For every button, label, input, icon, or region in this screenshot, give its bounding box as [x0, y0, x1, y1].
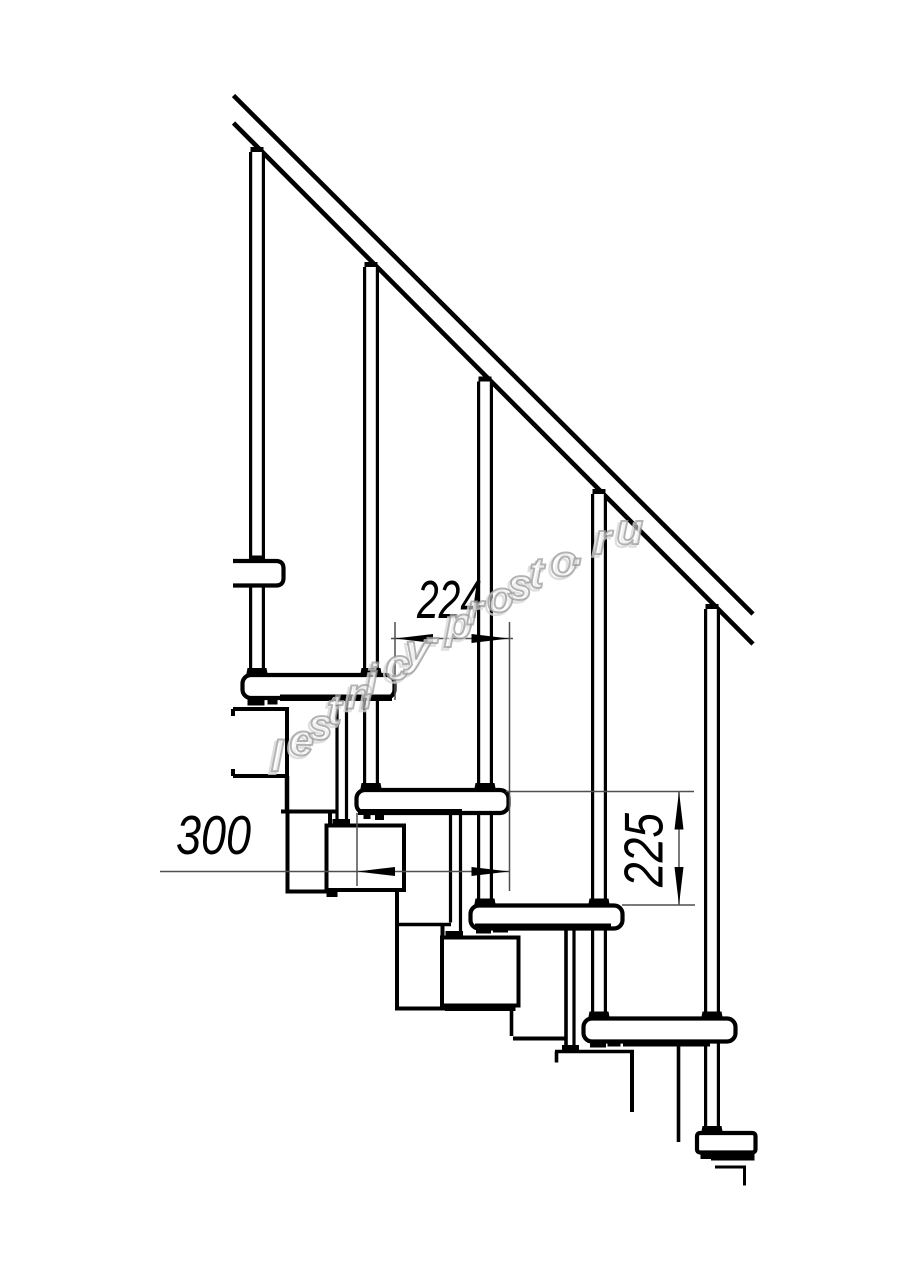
svg-text:225: 225 [613, 813, 675, 888]
svg-text:300: 300 [176, 804, 251, 866]
